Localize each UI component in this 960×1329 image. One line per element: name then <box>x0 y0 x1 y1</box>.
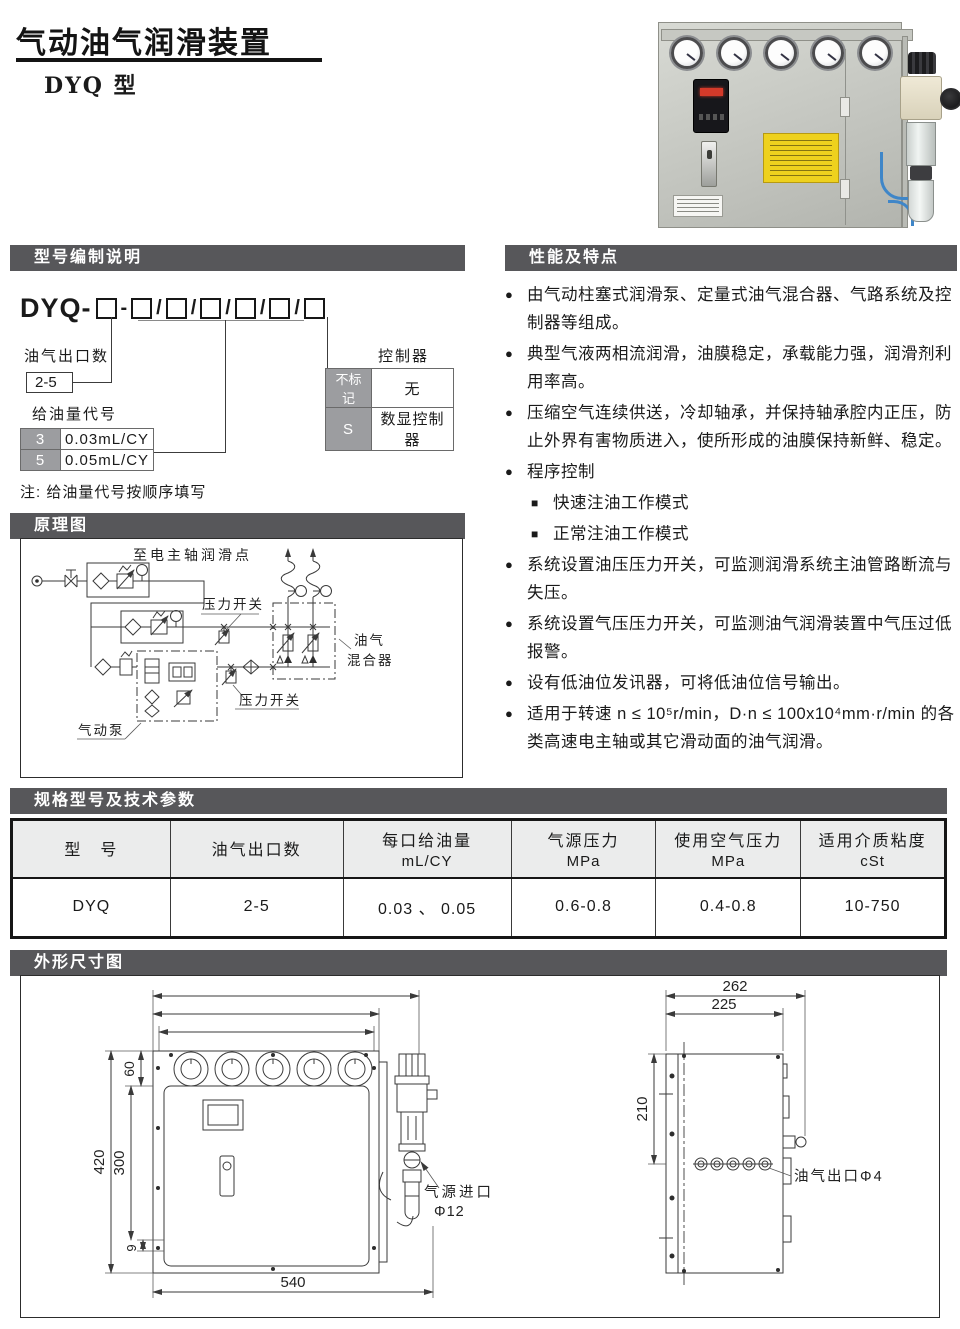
dim-210: 210 <box>634 1096 651 1121</box>
pressure-gauge-3 <box>765 37 797 69</box>
dim-540: 540 <box>280 1274 305 1291</box>
dim-262: 262 <box>722 978 747 995</box>
spec-cell-model: DYQ <box>12 878 171 938</box>
spec-header-row: 型 号 油气出口数 每口给油量mL/CY 气源压力MPa 使用空气压力MPa 适… <box>12 820 946 878</box>
frl-lubricator-bowl <box>908 180 934 222</box>
feature-text: 典型气液两相流润滑，油膜稳定，承载能力强，润滑剂利用率高。 <box>527 340 957 396</box>
feature-item: ●设有低油位发讯器，可将低油位信号输出。 <box>505 669 957 697</box>
feature-subitem: ■正常注油工作模式 <box>531 520 957 548</box>
spec-cell-outlets: 2-5 <box>170 878 343 938</box>
door-lock <box>701 141 717 187</box>
bullet-icon: ● <box>505 700 527 756</box>
output-lines-to-spindle <box>281 549 331 603</box>
dim-225: 225 <box>711 996 736 1013</box>
nameplate-text-lines <box>677 198 719 214</box>
table-row: S 数显控制器 <box>326 408 454 451</box>
digital-controller <box>693 79 729 133</box>
oil-code: 3 <box>21 429 61 450</box>
dimension-svg: 气源进口 Φ12 60 420 300 9 540 <box>21 976 939 1317</box>
outlet-count-value: 2-5 <box>26 372 73 393</box>
title-underline <box>16 58 322 62</box>
mixer-label-line1: 油气 <box>354 633 385 648</box>
spec-cell-air-pressure: 0.6-0.8 <box>511 878 656 938</box>
feature-text: 程序控制 <box>527 458 595 486</box>
dim-9: 9 <box>124 1244 139 1251</box>
feature-text: 系统设置气压压力开关，可监测油气润滑装置中气压过低报警。 <box>527 610 957 666</box>
model-slash-2: / <box>188 297 200 320</box>
pressure-switch-top-symbol <box>201 614 259 645</box>
section-heading-dimensions: 外形尺寸图 <box>10 950 947 976</box>
front-frl-assembly <box>379 1054 437 1262</box>
oil-code: 5 <box>21 450 61 471</box>
front-view: 气源进口 Φ12 60 420 300 9 540 <box>91 990 494 1298</box>
feature-item: ●系统设置气压压力开关，可监测油气润滑装置中气压过低报警。 <box>505 610 957 666</box>
feature-text: 压缩空气连续供送，冷却轴承，并保持轴承腔内正压，防止外界有害物质进入，使所形成的… <box>527 399 957 455</box>
model-note: 注: 给油量代号按顺序填写 <box>20 481 206 502</box>
spec-table: 型 号 油气出口数 每口给油量mL/CY 气源压力MPa 使用空气压力MPa 适… <box>10 818 947 939</box>
model-slash-3: / <box>222 297 234 320</box>
connector-oil-qty <box>142 320 226 453</box>
pressure-gauge-4 <box>812 37 844 69</box>
schematic-svg: 压力开关 <box>21 539 462 777</box>
outlet-count-label: 油气出口数 <box>24 345 109 366</box>
nameplate-label <box>673 195 723 217</box>
controller-value: 数显控制器 <box>372 408 454 451</box>
pressure-switch-bottom-label: 压力开关 <box>239 693 301 708</box>
connector-controller <box>327 317 328 368</box>
warning-label <box>763 133 839 183</box>
oil-air-mixer-box <box>221 603 335 679</box>
bullet-icon: ● <box>505 399 527 455</box>
air-inlet-diameter: Φ12 <box>434 1204 465 1220</box>
frl-regulator-knob <box>908 52 936 74</box>
controller-code: 不标记 <box>326 369 372 408</box>
feature-text: 系统设置油压压力开关，可监测润滑系统主油管路断流与失压。 <box>527 551 957 607</box>
dim-300: 300 <box>111 1150 128 1175</box>
frl-filter-bowl <box>906 122 936 166</box>
pump-label: 气动泵 <box>78 723 125 738</box>
filter-regulator-2 <box>91 611 273 644</box>
model-box-controller <box>304 298 325 319</box>
model-box-1 <box>131 298 152 319</box>
model-dash: - <box>118 297 131 320</box>
spec-cell-working-pressure: 0.4-0.8 <box>656 878 801 938</box>
controller-buttons <box>699 114 724 120</box>
pressure-gauge-2 <box>718 37 750 69</box>
frl-fitting <box>910 166 932 180</box>
feature-subitem: ■快速注油工作模式 <box>531 489 957 517</box>
model-box-5 <box>269 298 290 319</box>
oil-value: 0.03mL/CY <box>61 429 154 450</box>
dim-60: 60 <box>121 1061 137 1077</box>
feature-text: 由气动柱塞式润滑泵、定量式油气混合器、气路系统及控制器等组成。 <box>527 281 957 337</box>
section-heading-schematic: 原理图 <box>10 513 465 539</box>
photo-cabinet <box>658 22 902 228</box>
frl-regulator-body <box>900 76 942 120</box>
feature-item: ●由气动柱塞式润滑泵、定量式油气混合器、气路系统及控制器等组成。 <box>505 281 957 337</box>
section-heading-features: 性能及特点 <box>505 245 957 271</box>
model-designation-diagram: DYQ- - / / / / / 油气出口数 2-5 控制器 不标记 无 <box>10 283 465 511</box>
model-box-2 <box>166 298 187 319</box>
oil-air-outlets <box>693 1158 773 1170</box>
spec-header: 型 号 <box>12 820 171 878</box>
filter-regulator-1 <box>87 563 149 597</box>
model-box-4 <box>235 298 256 319</box>
door-hinge-bottom <box>840 179 850 199</box>
feature-text: 快速注油工作模式 <box>553 489 689 517</box>
features-list: ●由气动柱塞式润滑泵、定量式油气混合器、气路系统及控制器等组成。 ●典型气液两相… <box>505 281 957 759</box>
to-spindle-label: 至电主轴润滑点 <box>133 547 252 563</box>
feature-text: 设有低油位发讯器，可将低油位信号输出。 <box>527 669 850 697</box>
product-photo <box>652 12 944 237</box>
square-bullet-icon: ■ <box>531 520 553 548</box>
pressure-switch-top-label: 压力开关 <box>202 597 264 612</box>
controller-code-table: 不标记 无 S 数显控制器 <box>325 368 454 451</box>
side-view: 262 225 210 油气出口Φ4 <box>634 978 884 1285</box>
spec-header: 油气出口数 <box>170 820 343 878</box>
controller-value: 无 <box>372 369 454 408</box>
controller-led-display <box>700 88 723 96</box>
model-slash-5: / <box>291 297 303 320</box>
front-gauges <box>174 1052 372 1086</box>
model-box-3 <box>200 298 221 319</box>
bullet-icon: ● <box>505 458 527 486</box>
controller-code: S <box>326 408 372 451</box>
spec-data-row: DYQ 2-5 0.03 、 0.05 0.6-0.8 0.4-0.8 10-7… <box>12 878 946 938</box>
feature-text: 适用于转速 n ≤ 10⁵r/min，D·n ≤ 100x10⁴mm·r/min… <box>527 700 957 756</box>
mixer-label-line2: 混合器 <box>347 653 394 668</box>
air-pipe-elbow <box>91 581 204 667</box>
model-slash-1: / <box>153 297 165 320</box>
feature-item: ●典型气液两相流润滑，油膜稳定，承载能力强，润滑剂利用率高。 <box>505 340 957 396</box>
feature-item: ●压缩空气连续供送，冷却轴承，并保持轴承腔内正压，防止外界有害物质进入，使所形成… <box>505 399 957 455</box>
spec-header: 每口给油量mL/CY <box>343 820 511 878</box>
air-inlet-label: 气源进口 <box>424 1184 494 1201</box>
model-box-outlets <box>96 298 117 319</box>
bullet-icon: ● <box>505 281 527 337</box>
door-hinge-top <box>840 97 850 117</box>
pressure-gauge-1 <box>671 37 703 69</box>
oil-air-outlet-label: 油气出口Φ4 <box>794 1168 884 1185</box>
controller-label: 控制器 <box>378 345 429 366</box>
bullet-icon: ● <box>505 340 527 396</box>
air-inlet-symbol <box>32 570 87 587</box>
oil-qty-table: 3 0.03mL/CY 5 0.05mL/CY <box>20 428 154 471</box>
bullet-icon: ● <box>505 610 527 666</box>
feature-item: ●系统设置油压压力开关，可监测润滑系统主油管路断流与失压。 <box>505 551 957 607</box>
oil-value: 0.05mL/CY <box>61 450 154 471</box>
page-subtitle: DYQ 型 <box>44 68 138 100</box>
spec-cell-oil-qty: 0.03 、 0.05 <box>343 878 511 938</box>
feature-item: ●程序控制 <box>505 458 957 486</box>
dim-420: 420 <box>91 1149 108 1174</box>
square-bullet-icon: ■ <box>531 489 553 517</box>
catalog-page: 气动油气润滑装置 DYQ 型 <box>0 0 960 1329</box>
table-row: 5 0.05mL/CY <box>21 450 154 471</box>
spec-header: 使用空气压力MPa <box>656 820 801 878</box>
dimension-drawing: 气源进口 Φ12 60 420 300 9 540 <box>20 975 940 1318</box>
oil-qty-label: 给油量代号 <box>32 403 117 424</box>
section-heading-model: 型号编制说明 <box>10 245 465 271</box>
frl-gauge <box>940 88 960 110</box>
spec-header: 适用介质粘度cSt <box>801 820 946 878</box>
spec-cell-viscosity: 10-750 <box>801 878 946 938</box>
section-heading-specs: 规格型号及技术参数 <box>10 788 947 814</box>
page-title: 气动油气润滑装置 <box>16 18 272 62</box>
bullet-icon: ● <box>505 669 527 697</box>
table-row: 3 0.03mL/CY <box>21 429 154 450</box>
spec-header: 气源压力MPa <box>511 820 656 878</box>
model-slash-4: / <box>257 297 269 320</box>
schematic-diagram: 压力开关 <box>20 538 463 778</box>
table-row: 不标记 无 <box>326 369 454 408</box>
pressure-gauge-5 <box>859 37 891 69</box>
bullet-icon: ● <box>505 551 527 607</box>
pump-inlet-line <box>95 651 137 675</box>
mixer-label-leader <box>339 639 351 649</box>
warning-label-text-lines <box>770 138 832 178</box>
feature-text: 正常注油工作模式 <box>553 520 689 548</box>
feature-item: ●适用于转速 n ≤ 10⁵r/min，D·n ≤ 100x10⁴mm·r/mi… <box>505 700 957 756</box>
